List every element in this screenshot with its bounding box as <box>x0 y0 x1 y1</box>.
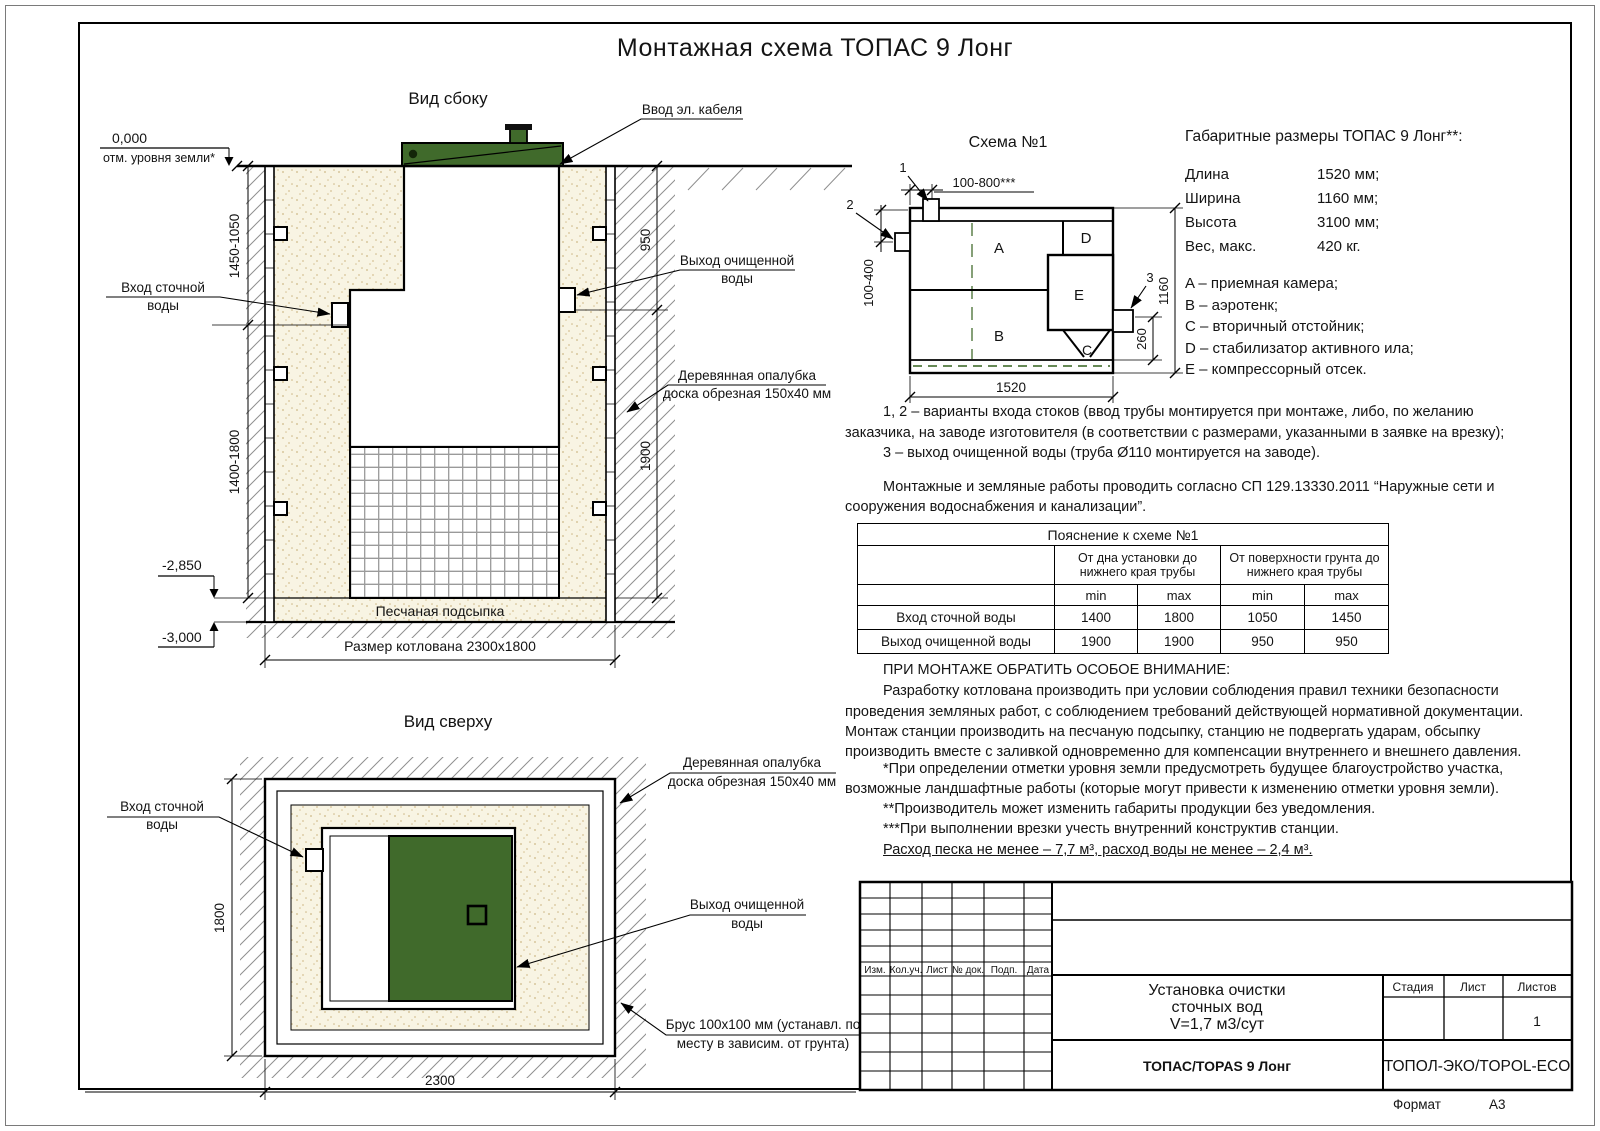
cable-label: Ввод эл. кабеля <box>642 102 742 117</box>
dim-1450-1050: 1450-1050 <box>227 214 242 279</box>
schema-inlet-stub-1 <box>923 199 939 221</box>
level-2850-label: -2,850 <box>162 557 202 573</box>
dim-260: 260 <box>1134 328 1149 350</box>
note-3: Монтажные и земляные работы проводить со… <box>845 477 1543 518</box>
outlet-label-top-1: Выход очищенной <box>690 897 804 912</box>
top-view-drawing: Вид сверху Вход сточной воды Деревянная … <box>80 695 880 1120</box>
attention-block: ПРИ МОНТАЖЕ ОБРАТИТЬ ОСОБОЕ ВНИМАНИЕ: Ра… <box>845 660 1545 762</box>
footnote-3: ***При выполнении врезки учесть внутренн… <box>845 819 1550 839</box>
sheets-label: Листов <box>1518 980 1557 994</box>
footnote-2: **Производитель может изменить габариты … <box>845 799 1550 819</box>
zone-e-label: E <box>1074 287 1084 304</box>
inlet-label-top-2: воды <box>146 817 178 832</box>
sheets-value: 1 <box>1533 1013 1541 1029</box>
schema-title: Схема №1 <box>969 134 1048 151</box>
legend-item: E – компрессорный отсек. <box>1185 359 1557 381</box>
schema-drawing: Схема №1 A B C D E 1 2 3 100-800*** 100-… <box>826 128 1190 410</box>
spec-row: Ширина1160 мм; <box>1185 187 1557 211</box>
zone-d-label: D <box>1081 230 1092 247</box>
zone-b-label: B <box>994 328 1004 345</box>
legend-item: B – аэротенк; <box>1185 295 1557 317</box>
level-3000-label: -3,000 <box>162 629 202 645</box>
spec-row: Высота3100 мм; <box>1185 211 1557 235</box>
side-view: Вид сбоку 0,000 отм. уровня земли* Ввод … <box>100 89 852 668</box>
col-group-1: От дна установки до нижнего края трубы <box>1055 546 1221 585</box>
schema-plan: Схема №1 A B C D E 1 2 3 100-800*** 100-… <box>846 134 1183 403</box>
specs-title: Габаритные размеры ТОПАС 9 Лонг**: <box>1185 128 1557 146</box>
cell-value: 1800 <box>1138 606 1221 630</box>
level-zero-note: отм. уровня земли* <box>103 151 215 165</box>
table-group-header-row: От дна установки до нижнего края трубы О… <box>858 546 1389 585</box>
inlet-label-top-1: Вход сточной <box>120 799 204 814</box>
drawing-sheet: Монтажная схема ТОПАС 9 Лонг <box>0 0 1600 1131</box>
pit-size-label: Размер котлована 2300х1800 <box>344 638 536 654</box>
station-ribbed-base <box>350 447 559 598</box>
sand-label: Песчаная подсыпка <box>376 603 505 619</box>
spec-value: 1160 мм; <box>1317 187 1378 211</box>
formwork-label-top-1: Деревянная опалубка <box>683 755 822 770</box>
cell-value: 950 <box>1221 630 1305 654</box>
row-label: Вход сточной воды <box>858 606 1055 630</box>
col-koluch: Кол.уч. <box>890 965 923 976</box>
project-line-1: Установка очистки <box>1148 982 1285 999</box>
row-label: Выход очищенной воды <box>858 630 1055 654</box>
dim-1160: 1160 <box>1156 277 1171 305</box>
stage-label: Стадия <box>1393 980 1434 994</box>
dim-1900: 1900 <box>638 441 653 471</box>
spec-value: 420 кг. <box>1317 235 1361 259</box>
inlet-label-2: воды <box>147 298 179 313</box>
legend-item: D – стабилизатор активного ила; <box>1185 338 1557 360</box>
dimensions-spec-block: Габаритные размеры ТОПАС 9 Лонг**: Длина… <box>1185 128 1557 381</box>
inlet-label-1: Вход сточной <box>121 280 205 295</box>
spec-value: 1520 мм; <box>1317 163 1379 187</box>
footnote-1: *При определении отметки уровня земли пр… <box>845 759 1550 799</box>
min-header: min <box>1221 585 1305 606</box>
company-name: ТОПОЛ-ЭКО/TOPOL-ECO <box>1384 1058 1571 1075</box>
marker-2: 2 <box>846 197 853 212</box>
side-view-drawing: Вид сбоку 0,000 отм. уровня земли* Ввод … <box>80 85 872 685</box>
level-zero-label: 0,000 <box>112 130 147 146</box>
project-line-2: сточных вод <box>1171 999 1263 1016</box>
col-data: Дата <box>1027 965 1050 976</box>
spec-row: Длина1520 мм; <box>1185 163 1557 187</box>
table-row: Вход сточной воды 1400 1800 1050 1450 <box>858 606 1389 630</box>
min-header: min <box>1055 585 1138 606</box>
page-title: Монтажная схема ТОПАС 9 Лонг <box>520 34 1110 63</box>
legend-item: C – вторичный отстойник; <box>1185 316 1557 338</box>
table-title: Пояснение к схеме №1 <box>858 524 1389 546</box>
top-view-title: Вид сверху <box>404 712 493 731</box>
footnotes-block: *При определении отметки уровня земли пр… <box>845 759 1550 839</box>
beam-label-2: месту в зависим. от грунта) <box>677 1036 849 1051</box>
col-group-2: От поверхности грунта до нижнего края тр… <box>1221 546 1389 585</box>
outlet-fitting <box>559 288 575 312</box>
dim-1800: 1800 <box>212 903 227 933</box>
cell-value: 950 <box>1305 630 1389 654</box>
cell-value: 1450 <box>1305 606 1389 630</box>
explanation-table: Пояснение к схеме №1 От дна установки до… <box>857 523 1389 654</box>
title-block: Изм. Кол.уч. Лист № док. Подп. Дата Уста… <box>855 880 1577 1094</box>
spec-label: Высота <box>1185 211 1317 235</box>
product-name: ТОПАС/TOPAS 9 Лонг <box>1143 1058 1291 1074</box>
spec-row: Вес, макс.420 кг. <box>1185 235 1557 259</box>
spec-label: Длина <box>1185 163 1317 187</box>
vent-cap-icon <box>510 129 527 143</box>
zone-a-label: A <box>994 240 1004 257</box>
consumption-note: Расход песка не менее – 7,7 м³, расход в… <box>845 842 1550 858</box>
cell-value: 1400 <box>1055 606 1138 630</box>
attention-heading: ПРИ МОНТАЖЕ ОБРАТИТЬ ОСОБОЕ ВНИМАНИЕ: <box>845 660 1545 680</box>
spec-label: Вес, макс. <box>1185 235 1317 259</box>
dim-100-400: 100-400 <box>861 259 876 307</box>
formwork-label-1: Деревянная опалубка <box>678 368 817 383</box>
lid-top-view <box>389 836 512 1001</box>
beam-label-1: Брус 100х100 мм (устанавл. по <box>666 1017 861 1032</box>
zone-c-label: C <box>1082 342 1092 358</box>
project-line-3: V=1,7 м3/сут <box>1170 1016 1265 1033</box>
inlet-fitting-top <box>306 849 323 871</box>
outlet-label-2: воды <box>721 271 753 286</box>
dim-1520: 1520 <box>996 380 1026 395</box>
dim-950: 950 <box>638 229 653 252</box>
formwork-label-2: доска обрезная 150х40 мм <box>663 386 831 401</box>
dim-2300: 2300 <box>425 1073 455 1088</box>
schema-outlet-stub-3 <box>1113 310 1133 332</box>
outlet-label-top-2: воды <box>731 916 763 931</box>
schema-inlet-stub-2 <box>895 233 910 251</box>
sheet-label: Лист <box>1460 980 1487 994</box>
station-lid <box>402 124 563 166</box>
outlet-label-1: Выход очищенной <box>680 253 794 268</box>
inlet-fitting <box>332 303 348 327</box>
consumption-text: Расход песка не менее – 7,7 м³, расход в… <box>883 842 1312 858</box>
table-minmax-row: min max min max <box>858 585 1389 606</box>
note-1: 1, 2 – варианты входа стоков (ввод трубы… <box>845 402 1543 443</box>
table-title-row: Пояснение к схеме №1 <box>858 524 1389 546</box>
table-row: Выход очищенной воды 1900 1900 950 950 <box>858 630 1389 654</box>
note-2: 3 – выход очищенной воды (труба Ø110 мон… <box>845 443 1543 464</box>
zone-legend: A – приемная камера; B – аэротенк; C – в… <box>1185 273 1557 381</box>
legend-item: A – приемная камера; <box>1185 273 1557 295</box>
max-header: max <box>1138 585 1221 606</box>
lid-lock-icon <box>409 150 417 158</box>
max-header: max <box>1305 585 1389 606</box>
marker-3: 3 <box>1146 270 1153 285</box>
spec-label: Ширина <box>1185 187 1317 211</box>
col-podp: Подп. <box>991 965 1018 976</box>
spec-value: 3100 мм; <box>1317 211 1379 235</box>
col-izm: Изм. <box>864 965 885 976</box>
top-view: Вид сверху Вход сточной воды Деревянная … <box>85 712 860 1100</box>
attention-body: Разработку котлована производить при усл… <box>845 681 1545 762</box>
marker-1: 1 <box>899 160 906 175</box>
cell-value: 1050 <box>1221 606 1305 630</box>
format-value: А3 <box>1489 1097 1506 1112</box>
dim-1400-1800: 1400-1800 <box>227 430 242 495</box>
cell-value: 1900 <box>1138 630 1221 654</box>
format-label: Формат <box>1393 1097 1441 1112</box>
notes-block: 1, 2 – варианты входа стоков (ввод трубы… <box>845 402 1543 518</box>
formwork-label-top-2: доска обрезная 150х40 мм <box>668 774 836 789</box>
col-ndok: № док. <box>952 965 984 976</box>
col-list: Лист <box>926 965 948 976</box>
cell-value: 1900 <box>1055 630 1138 654</box>
dim-100-800: 100-800*** <box>953 175 1016 190</box>
side-view-title: Вид сбоку <box>408 89 488 108</box>
